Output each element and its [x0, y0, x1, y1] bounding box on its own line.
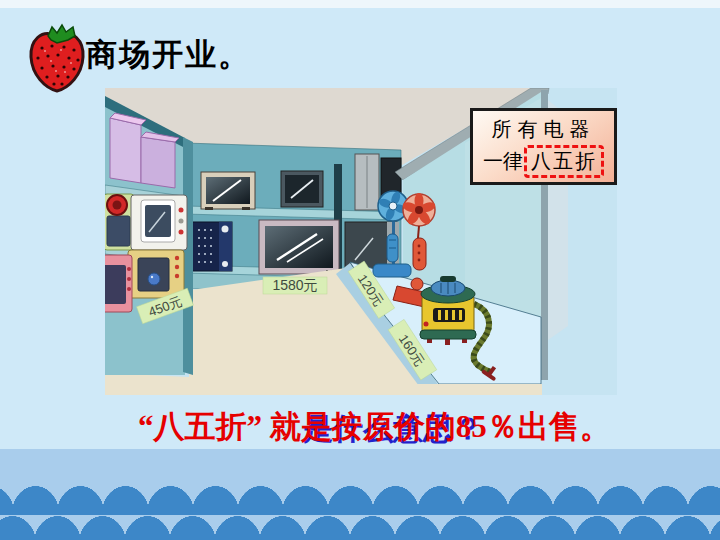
caption-answer: “八五折” 就是按原价的85％出售。	[138, 406, 611, 448]
price-tag-tv-label: 1580元	[272, 277, 317, 293]
promo-sign: 所有电器 一律 八五折	[470, 108, 617, 185]
tv-dark	[281, 171, 323, 207]
tv-big	[259, 220, 339, 274]
sign-line2: 一律 八五折	[473, 145, 614, 178]
wave-row-bottom	[0, 516, 720, 540]
sign-line2-prefix: 一律	[483, 148, 523, 175]
strawberry-icon	[24, 20, 90, 94]
sign-line1: 所有电器	[473, 116, 614, 143]
pink-microwave	[105, 255, 132, 312]
strawberry-shape	[31, 25, 83, 91]
tv-beige	[201, 172, 255, 210]
wave-row-top	[0, 486, 720, 515]
slide: 商场开业。	[0, 0, 720, 540]
yellow-microwave	[128, 250, 184, 298]
green-microwave	[105, 194, 134, 250]
top-strip	[0, 0, 720, 8]
discount-highlight: 八五折	[524, 145, 604, 178]
stereo-speaker	[192, 222, 232, 271]
page-title: 商场开业。	[86, 34, 251, 76]
white-microwave	[131, 195, 187, 250]
